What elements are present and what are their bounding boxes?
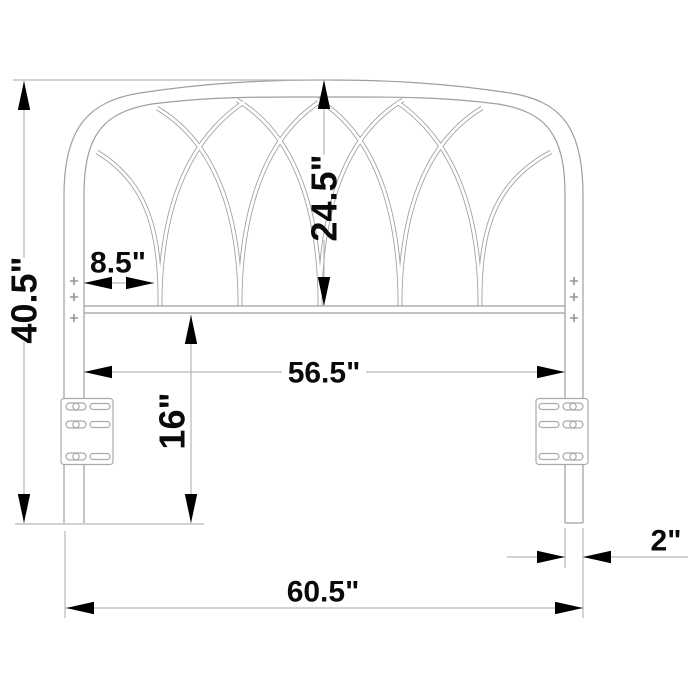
bracket-hole (73, 403, 79, 409)
plus-mark (571, 294, 578, 301)
arrow-left (84, 366, 112, 378)
arrow-left (583, 551, 611, 563)
bracket-slot (539, 404, 559, 410)
plus-mark (571, 315, 578, 322)
bracket-slot (539, 422, 559, 428)
bracket-slot (90, 454, 110, 460)
tracery-branch-core (480, 152, 551, 306)
plus-mark (71, 278, 78, 285)
bracket-hole (73, 421, 79, 427)
dim-side-panel-width-label: 8.5" (90, 247, 146, 280)
dim-inner-width: 56.5" (84, 357, 565, 390)
tracery-branch-core (157, 108, 240, 306)
bracket-slot (90, 404, 110, 410)
dim-inner-width-label: 56.5" (288, 357, 361, 390)
arrow-down (185, 494, 197, 523)
dim-leg-width: 2" (507, 525, 688, 619)
arrow-right (537, 366, 565, 378)
dim-overall-width: 60.5" (65, 531, 583, 618)
dim-side-panel-width: 8.5" (84, 247, 154, 290)
bracket-hole (570, 453, 576, 459)
dim-leg-width-label: 2" (651, 525, 682, 558)
arrow-up (318, 80, 330, 109)
arrow-down (18, 494, 30, 523)
headboard-dimension-diagram: 40.5" 24.5" 8.5" 56.5" 16" 2" (0, 0, 700, 700)
plus-mark (71, 315, 78, 322)
diagram-canvas: 40.5" 24.5" 8.5" 56.5" 16" 2" (0, 0, 700, 700)
dim-lower-leg-height: 16" (152, 315, 198, 523)
arrow-right (555, 602, 583, 614)
bracket-hole (570, 421, 576, 427)
arrow-up (18, 81, 30, 110)
plus-mark (571, 278, 578, 285)
arrow-left (66, 602, 94, 614)
mounting-bracket-right (536, 399, 588, 465)
tracery-branch-core (397, 102, 480, 306)
dim-overall-width-label: 60.5" (287, 576, 360, 609)
arrow-up (185, 315, 197, 344)
tracery-branch-core (160, 102, 244, 306)
dim-lower-leg-height-label: 16" (152, 392, 193, 449)
bracket-hole (570, 403, 576, 409)
dim-arch-inner-height-label: 24.5" (304, 154, 345, 241)
lower-rail (84, 306, 565, 313)
bracket-slot (539, 454, 559, 460)
bracket-hole (73, 453, 79, 459)
mounting-bracket-left (61, 399, 113, 465)
tracery-branch (480, 152, 551, 306)
bracket-slot (90, 422, 110, 428)
dim-overall-height-label: 40.5" (4, 256, 45, 343)
plus-mark (71, 294, 78, 301)
arrow-right (537, 551, 565, 563)
